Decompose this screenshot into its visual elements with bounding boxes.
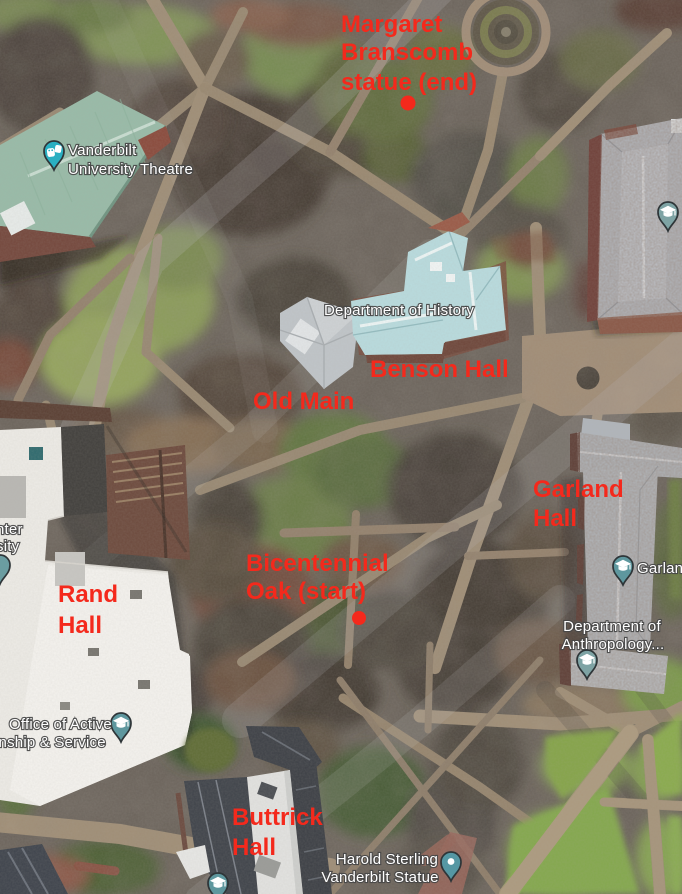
svg-text:Garland: Garland [533, 476, 624, 503]
svg-text:Harold Sterling: Harold Sterling [336, 851, 438, 868]
svg-text:Hall: Hall [232, 834, 276, 861]
svg-text:Hall: Hall [58, 612, 102, 639]
svg-text:Branscomb: Branscomb [341, 39, 473, 66]
svg-text:Buttrick: Buttrick [232, 804, 323, 831]
svg-text:Margaret: Margaret [341, 11, 442, 38]
svg-text:Vanderbilt Statue: Vanderbilt Statue [321, 869, 438, 886]
svg-text:statue (end): statue (end) [341, 69, 477, 96]
svg-text:Anthropology...: Anthropology... [562, 636, 665, 653]
svg-text:Garland H: Garland H [637, 560, 682, 577]
svg-text:Department of History: Department of History [324, 302, 474, 319]
svg-text:Old Main: Old Main [253, 388, 354, 415]
svg-text:nter: nter [0, 521, 23, 538]
svg-text:Bicentennial: Bicentennial [246, 550, 389, 577]
svg-text:Oak (start): Oak (start) [246, 578, 366, 605]
svg-text:Rand: Rand [58, 581, 118, 608]
svg-text:Hall: Hall [533, 505, 577, 532]
svg-text:University Theatre: University Theatre [68, 161, 193, 178]
svg-text:Benson Hall: Benson Hall [370, 356, 509, 383]
svg-text:sity: sity [0, 538, 20, 555]
svg-text:Department of: Department of [563, 618, 661, 635]
svg-text:Office of Active: Office of Active [9, 716, 112, 733]
svg-text:enship & Service: enship & Service [0, 734, 106, 751]
svg-text:Vanderbilt: Vanderbilt [68, 142, 137, 159]
